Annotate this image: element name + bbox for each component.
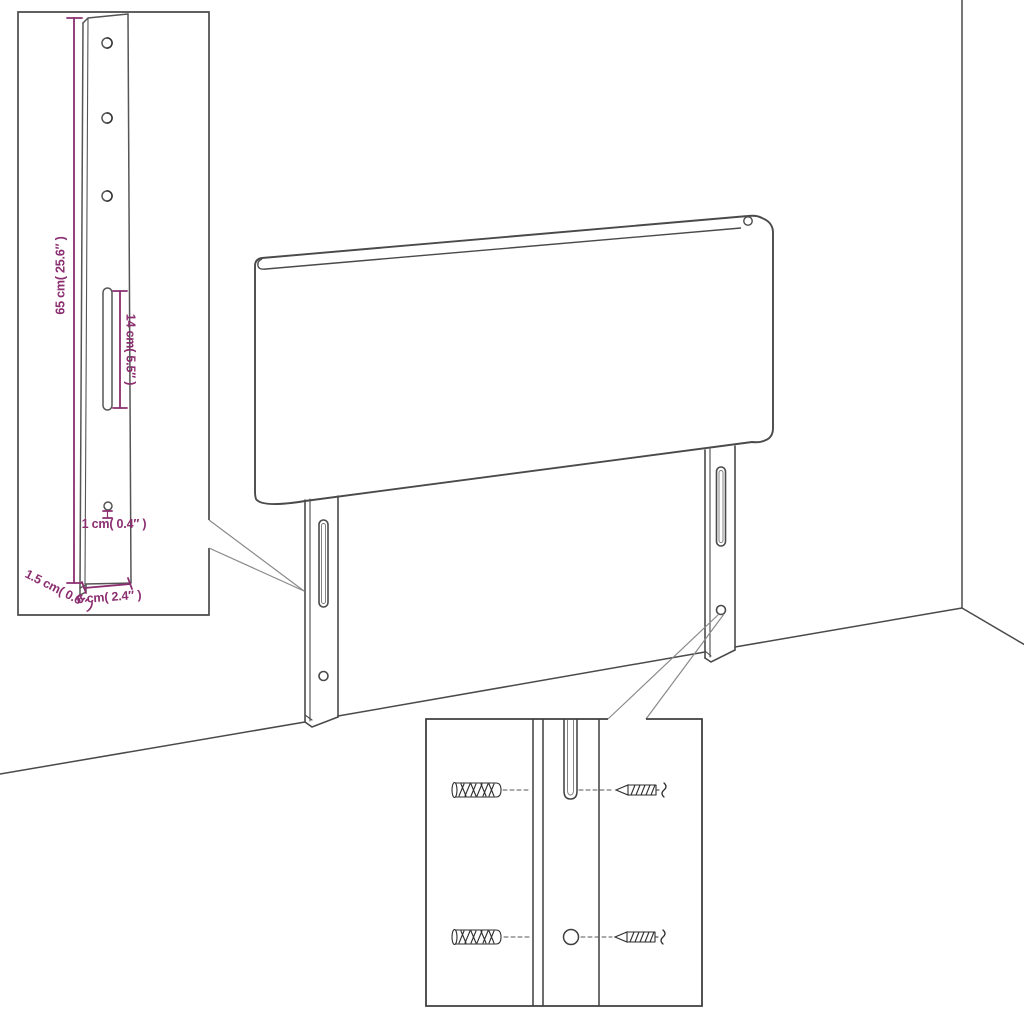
bracket-small-hole <box>104 502 112 510</box>
wall-plug-top <box>452 783 501 798</box>
right-leg <box>705 446 735 662</box>
headboard-dimension-diagram: 65 cm( 25.6″ ) 14 cm( 5.5″ ) 1 cm( 0.4″ … <box>0 0 1024 1024</box>
left-leg-slot <box>319 520 328 607</box>
dimension-label-slot-length: 14 cm( 5.5″ ) <box>123 295 138 405</box>
headboard-panel <box>255 216 773 504</box>
slot-closeup <box>564 720 577 799</box>
left-leg <box>305 496 338 727</box>
right-leg-hole <box>717 606 726 615</box>
inset-callout-lines <box>209 520 304 591</box>
dimension-label-hole-diameter: 1 cm( 0.4″ ) <box>69 517 159 532</box>
screw-bottom <box>615 930 665 944</box>
diagram-line-art <box>0 0 1024 1024</box>
dimension-label-bracket-height: 65 cm( 25.6″ ) <box>54 221 69 331</box>
right-leg-slot-inner <box>719 471 723 543</box>
right-leg-slot <box>717 467 726 546</box>
bracket-slot <box>103 288 112 410</box>
hole-closeup <box>564 930 579 945</box>
left-leg-slot-inner <box>322 524 326 604</box>
left-leg-hole <box>319 672 328 681</box>
screw-top <box>616 783 666 797</box>
mounting-detail-content <box>452 720 666 1005</box>
wall-plug-bottom <box>452 930 501 945</box>
